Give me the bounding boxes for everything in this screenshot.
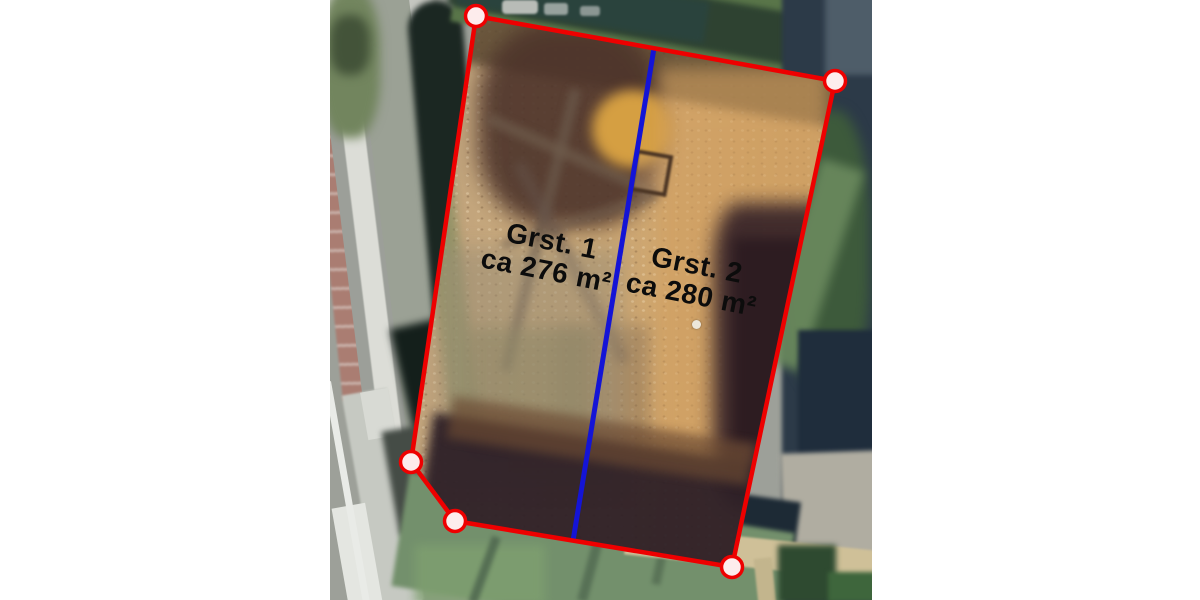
aerial-photo: Grst. 1 ca 276 m² Grst. 2 ca 280 m²: [330, 0, 872, 600]
boundary-polygon: [411, 16, 835, 567]
parcel-overlay-svg: [330, 0, 872, 600]
vertex-handle[interactable]: [401, 452, 422, 473]
vertex-handle[interactable]: [445, 511, 466, 532]
vertex-handle[interactable]: [722, 557, 743, 578]
vertex-handle[interactable]: [825, 71, 846, 92]
vertex-handle[interactable]: [466, 6, 487, 27]
map-canvas: Grst. 1 ca 276 m² Grst. 2 ca 280 m²: [0, 0, 1200, 600]
